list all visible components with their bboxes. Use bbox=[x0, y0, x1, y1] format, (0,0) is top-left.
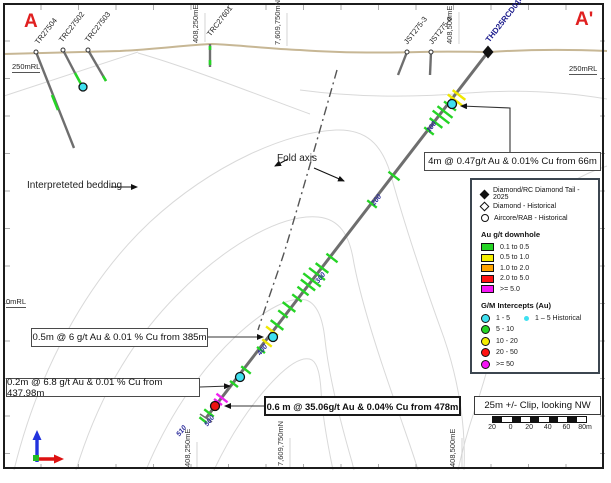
scalebar-segment bbox=[512, 417, 521, 422]
scalebar-tick-label: 80m bbox=[578, 424, 592, 431]
annotation-box-385m: 0.5m @ 6 g/t Au & 0.01 % Cu from 385m bbox=[31, 328, 208, 347]
scalebar-tick-label: 40 bbox=[544, 424, 552, 431]
au-grade-label: 0.1 to 0.5 bbox=[500, 244, 529, 251]
gm-intercept-circle bbox=[481, 337, 490, 346]
elevation-label-0-left: 0mRL bbox=[6, 297, 26, 308]
scalebar-tick-label: 20 bbox=[488, 424, 496, 431]
legend-au-row: >= 5.0 bbox=[481, 284, 591, 295]
legend-au-row: 1.0 to 2.0 bbox=[481, 263, 591, 274]
legend-au-row: 2.0 to 5.0 bbox=[481, 274, 591, 285]
au-grade-label: 2.0 to 5.0 bbox=[500, 275, 529, 282]
legend-gm-row: 5 - 10 bbox=[481, 324, 591, 336]
gm-intercept-circle bbox=[481, 360, 490, 369]
scalebar-segment bbox=[558, 417, 567, 422]
circle-open-icon bbox=[481, 214, 489, 222]
section-label-a: A bbox=[24, 11, 38, 33]
scalebar-segment bbox=[539, 417, 548, 422]
grid-label-bottom-408250: 408,250mE bbox=[183, 429, 192, 467]
grid-label-bottom-7609750: 7,609,750mN bbox=[276, 421, 285, 466]
gm-intercept-circle bbox=[481, 348, 490, 357]
section-label-a-prime: A' bbox=[575, 9, 593, 31]
legend-symbol-list: Diamond/RC Diamond Tail - 2025Diamond - … bbox=[481, 188, 591, 224]
au-grade-swatch bbox=[481, 243, 494, 251]
grid-label-bottom-408500: 408,500mE bbox=[448, 429, 457, 467]
legend-symbol-row: Diamond - Historical bbox=[481, 200, 591, 212]
legend-au-list: 0.1 to 0.50.5 to 1.01.0 to 2.02.0 to 5.0… bbox=[481, 242, 591, 295]
diamond-open-icon bbox=[480, 201, 490, 211]
gm-intercept-label: 1 - 5 bbox=[496, 315, 510, 322]
au-grade-swatch bbox=[481, 264, 494, 272]
gm-intercept-circle bbox=[481, 314, 490, 323]
legend-au-header: Au g/t downhole bbox=[481, 230, 591, 239]
gm-intercept-label: 10 - 20 bbox=[496, 338, 518, 345]
scalebar-segment bbox=[549, 417, 558, 422]
gm-intercept-label: >= 50 bbox=[496, 361, 514, 368]
au-grade-label: 1.0 to 2.0 bbox=[500, 265, 529, 272]
legend-symbol-row: Aircore/RAB - Historical bbox=[481, 212, 591, 224]
scalebar-segment bbox=[530, 417, 539, 422]
au-grade-label: 0.5 to 1.0 bbox=[500, 254, 529, 261]
scale-bar-segments bbox=[492, 416, 587, 423]
scalebar-segment bbox=[577, 417, 586, 422]
au-grade-swatch bbox=[481, 285, 494, 293]
scalebar-tick-label: 0 bbox=[509, 424, 513, 431]
annotation-box-437m: 0.2m @ 6.8 g/t Au & 0.01 % Cu from 437.9… bbox=[6, 378, 200, 397]
grid-label-top-408250: 408,250mE bbox=[191, 5, 200, 43]
scalebar-tick-label: 60 bbox=[562, 424, 570, 431]
legend-gm-header: G/M Intercepts (Au) bbox=[481, 301, 591, 310]
legend-gm-list: 1 - 51 – 5 Historical5 - 1010 - 2020 - 5… bbox=[481, 313, 591, 371]
gm-intercept-label: 5 - 10 bbox=[496, 326, 514, 333]
bedding-label: Interpreteted bedding bbox=[27, 180, 122, 191]
legend-gm-row: 20 - 50 bbox=[481, 347, 591, 359]
legend-symbol-label: Diamond/RC Diamond Tail - 2025 bbox=[493, 187, 591, 201]
scalebar-tick-label: 20 bbox=[525, 424, 533, 431]
annotation-box-478m: 0.6 m @ 35.06g/t Au & 0.04% Cu from 478m bbox=[264, 396, 461, 416]
annotation-box-66m: 4m @ 0.47g/t Au & 0.01% Cu from 66m bbox=[424, 152, 601, 171]
au-grade-swatch bbox=[481, 254, 494, 262]
grid-label-top-7609750: 7,609,750mN bbox=[273, 0, 282, 45]
cross-section-figure: A A' 250mRL 250mRL 0mRL 408,250mE 7,609,… bbox=[0, 0, 611, 483]
legend-gm-row: 10 - 20 bbox=[481, 336, 591, 348]
legend-symbol-label: Aircore/RAB - Historical bbox=[494, 215, 568, 222]
legend-gm-row: 1 - 51 – 5 Historical bbox=[481, 313, 591, 325]
gm-intercept-circle bbox=[481, 325, 490, 334]
diamond-filled-icon bbox=[480, 189, 490, 199]
scalebar-segment bbox=[567, 417, 576, 422]
elevation-label-250-left: 250mRL bbox=[12, 62, 40, 73]
clip-note-box: 25m +/- Clip, looking NW bbox=[474, 396, 601, 415]
gm-historical-dot bbox=[524, 316, 529, 321]
legend-gm-row: >= 50 bbox=[481, 359, 591, 371]
au-grade-swatch bbox=[481, 275, 494, 283]
legend-symbol-label: Diamond - Historical bbox=[493, 203, 556, 210]
scalebar-segment bbox=[502, 417, 511, 422]
fold-axis-label: Fold axis bbox=[277, 153, 317, 164]
scale-bar: 20020406080m bbox=[492, 416, 585, 423]
legend: Diamond/RC Diamond Tail - 2025Diamond - … bbox=[470, 178, 600, 374]
elevation-label-250-right: 250mRL bbox=[569, 64, 597, 75]
scalebar-segment bbox=[493, 417, 502, 422]
gm-historical-label: 1 – 5 Historical bbox=[535, 315, 581, 322]
scalebar-segment bbox=[521, 417, 530, 422]
au-grade-label: >= 5.0 bbox=[500, 286, 520, 293]
legend-symbol-row: Diamond/RC Diamond Tail - 2025 bbox=[481, 188, 591, 200]
legend-au-row: 0.5 to 1.0 bbox=[481, 253, 591, 264]
legend-au-row: 0.1 to 0.5 bbox=[481, 242, 591, 253]
gm-intercept-label: 20 - 50 bbox=[496, 349, 518, 356]
